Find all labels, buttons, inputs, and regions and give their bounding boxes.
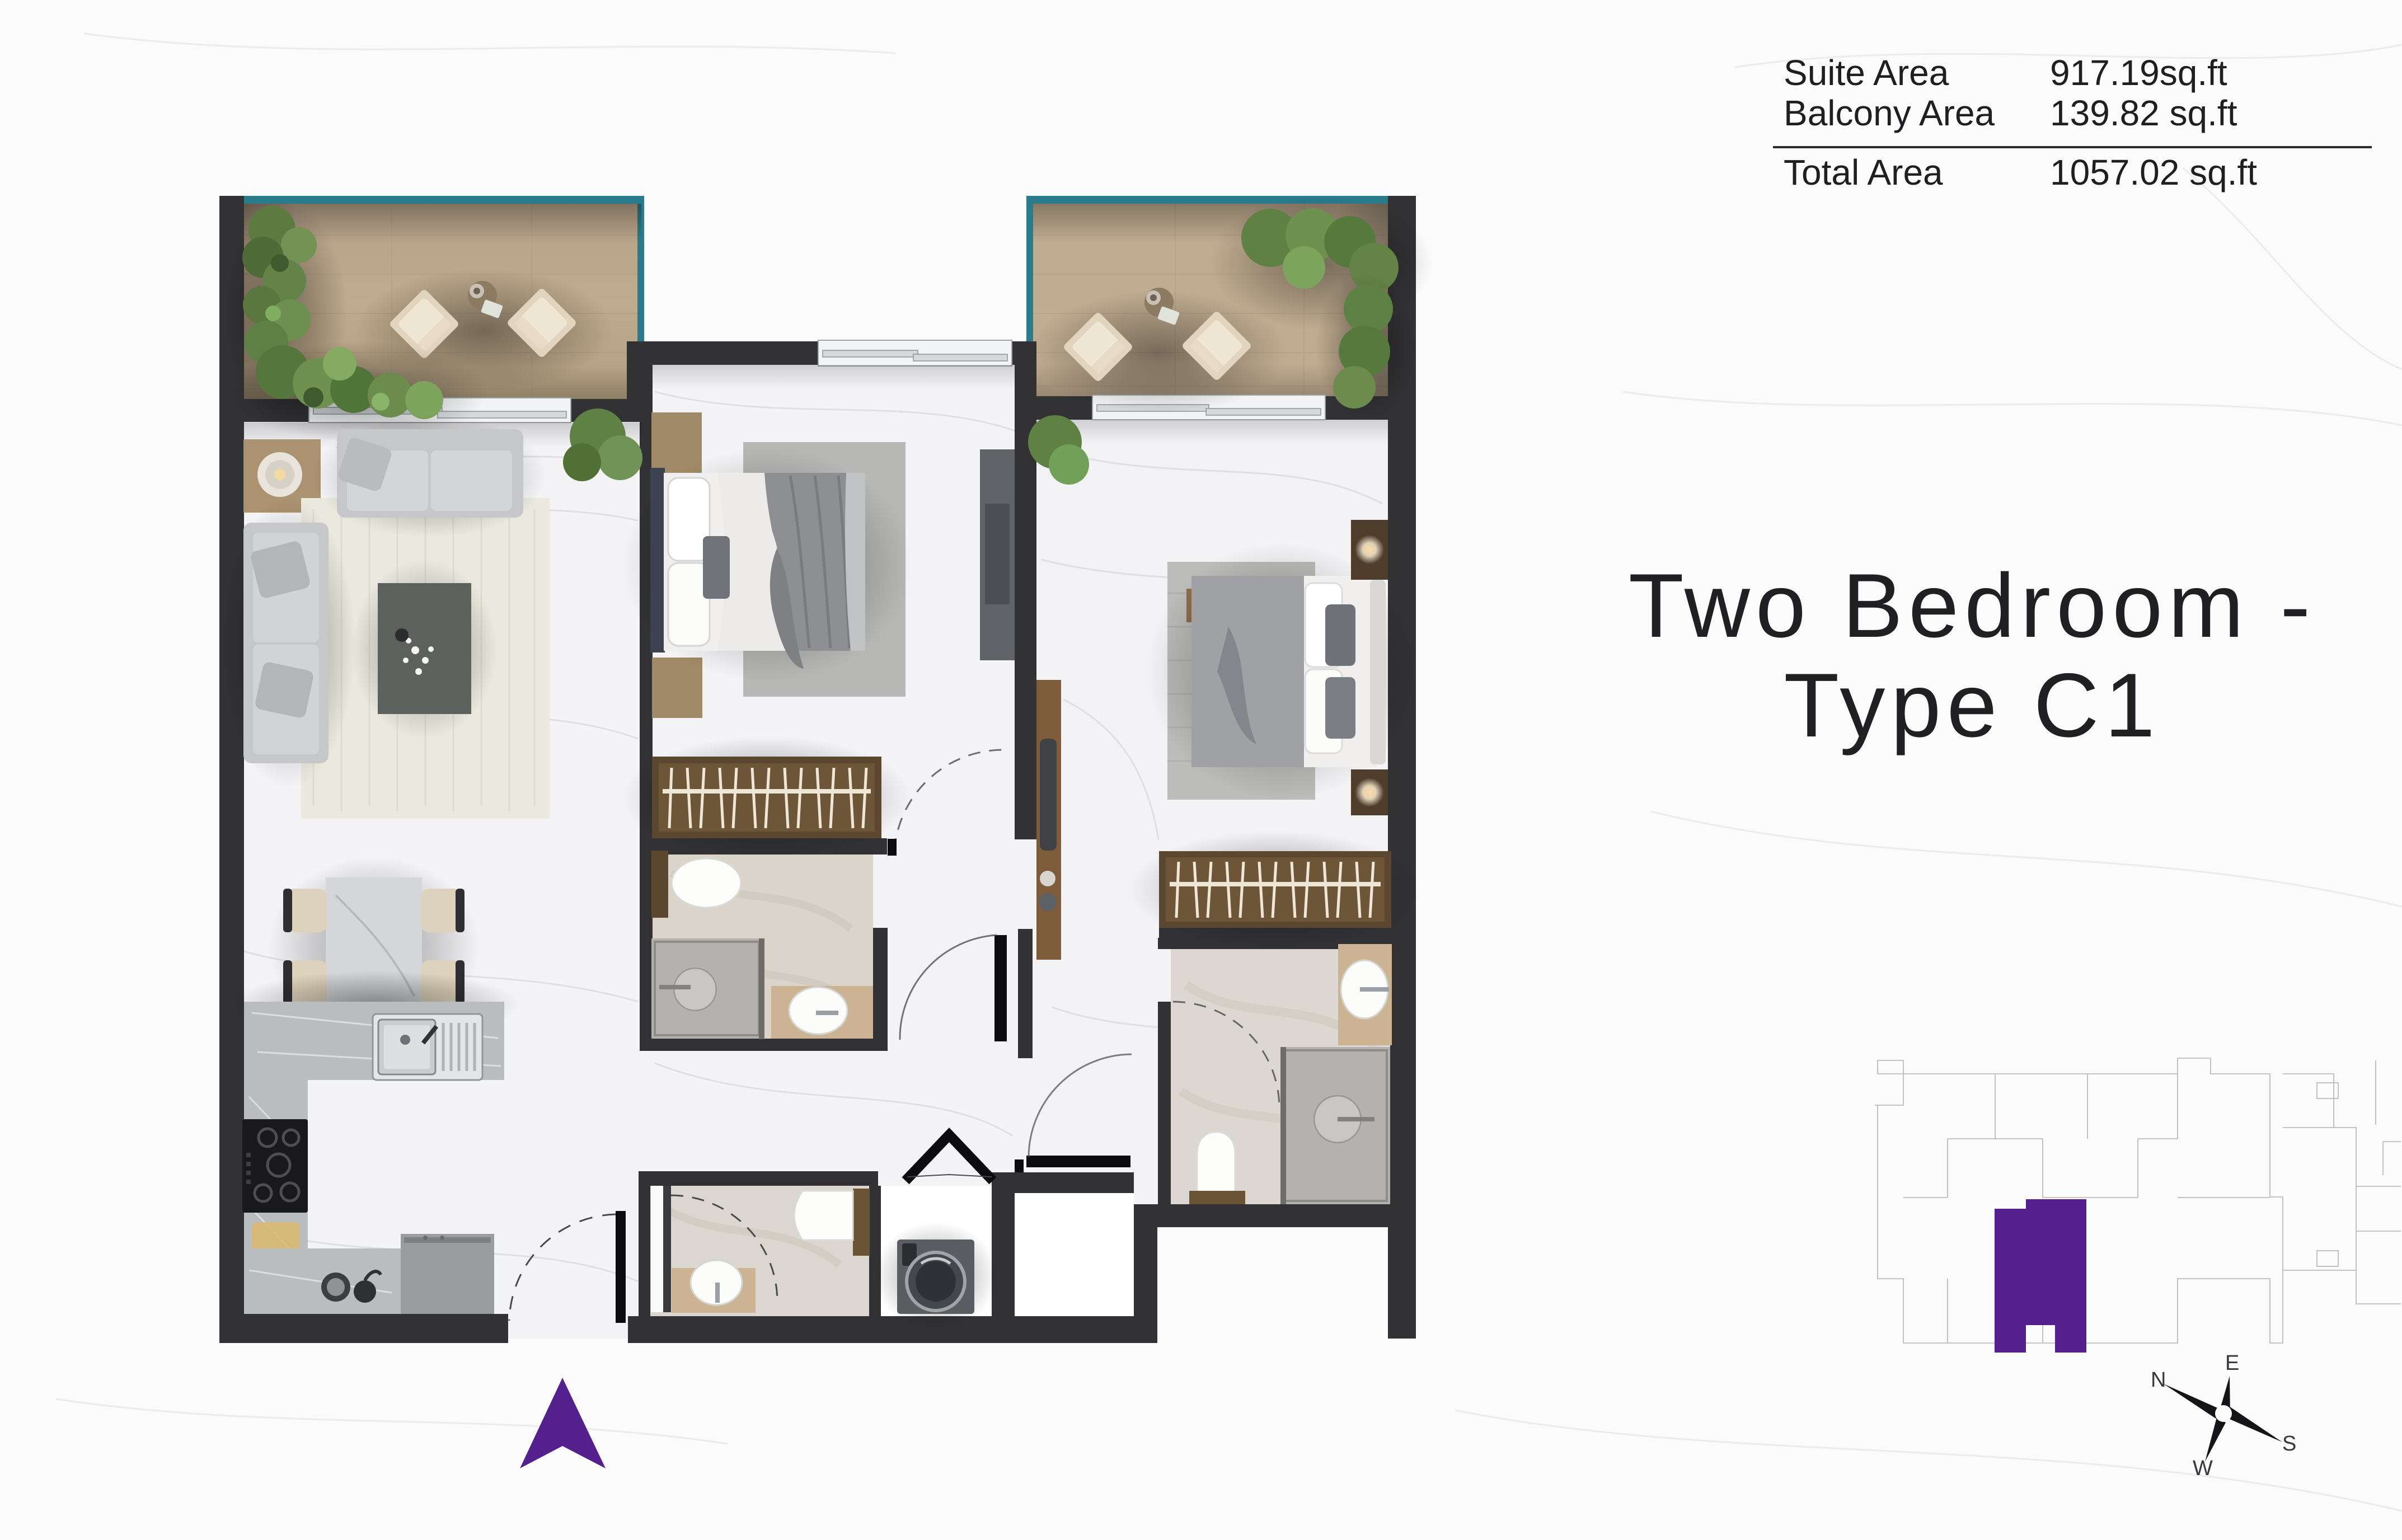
svg-text:Type C1: Type C1	[1784, 655, 2160, 756]
svg-text:E: E	[2225, 1351, 2239, 1375]
svg-text:Suite Area: Suite Area	[1784, 53, 1949, 93]
svg-text:Balcony Area: Balcony Area	[1784, 93, 1995, 133]
svg-text:Total Area: Total Area	[1784, 152, 1943, 192]
svg-text:W: W	[2193, 1457, 2213, 1480]
svg-text:917.19sq.ft: 917.19sq.ft	[2050, 53, 2227, 93]
svg-text:Two Bedroom -: Two Bedroom -	[1629, 555, 2316, 656]
svg-text:N: N	[2151, 1368, 2166, 1392]
svg-text:S: S	[2282, 1432, 2296, 1456]
svg-text:139.82 sq.ft: 139.82 sq.ft	[2050, 93, 2237, 133]
svg-text:1057.02 sq.ft: 1057.02 sq.ft	[2050, 152, 2257, 192]
